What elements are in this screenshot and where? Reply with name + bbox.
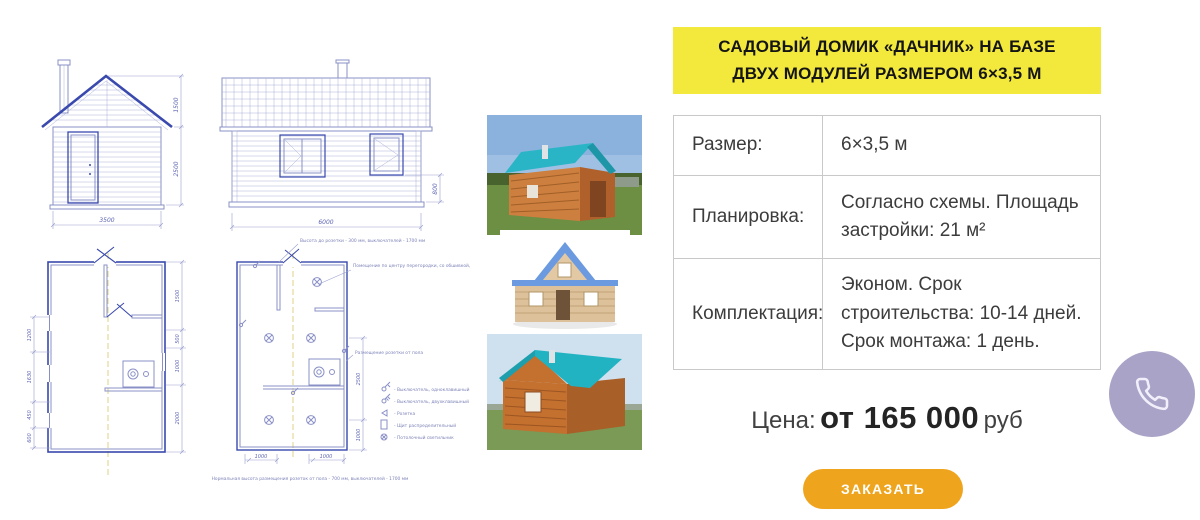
note-top: Высота до розетки - 300 мм, выключателей… [300, 237, 425, 244]
dim-label: 1000 [320, 454, 333, 460]
spec-table: Размер: 6×3,5 м Планировка: Согласно схе… [673, 115, 1101, 370]
dimension-right: 800 [405, 173, 444, 204]
dimension-bottom: 1000 1000 [245, 454, 346, 464]
base-plinth [50, 205, 164, 209]
dimension-left: 1200 1630 450 600 [27, 315, 50, 450]
spec-label-layout: Планировка: [674, 176, 823, 259]
spec-value-size: 6×3,5 м [823, 116, 1101, 176]
dim-label: 1500 [175, 290, 181, 303]
dim-label: 800 [432, 183, 439, 195]
legend-label: - Потолочный светильник [394, 434, 454, 441]
chimney [336, 60, 349, 78]
dim-label: 2500 [173, 161, 180, 176]
partitions [263, 249, 344, 389]
house-photo-2[interactable] [500, 230, 630, 332]
dim-label: 1630 [27, 371, 33, 384]
front-elevation-drawing: 1500 2500 3500 [28, 45, 216, 243]
outer-walls [237, 262, 347, 450]
spec-value-kit: Эконом. Срок строительства: 10-14 дней. … [823, 259, 1101, 370]
door [68, 132, 98, 203]
dimension-bottom: 6000 [230, 213, 423, 231]
dim-label: 6000 [318, 219, 333, 226]
price-currency: руб [984, 407, 1023, 434]
cooker-symbol [309, 359, 340, 385]
gable-wall [53, 80, 161, 205]
dim-label: 2000 [175, 412, 181, 425]
table-row: Планировка: Согласно схемы. Площадь заст… [674, 176, 1101, 259]
phone-button[interactable] [1109, 351, 1195, 437]
spec-label-kit: Комплектация: [674, 259, 823, 370]
dim-label: 450 [27, 410, 33, 420]
floor-plan-drawing: 1200 1630 450 600 1500 500 1000 2000 [20, 245, 200, 485]
house-photo-1[interactable] [487, 115, 642, 235]
product-page: 1500 2500 3500 [0, 0, 1200, 520]
notes: Высота до розетки - 300 мм, выключателей… [212, 237, 470, 482]
dim-label: 1000 [175, 360, 181, 373]
panel-icon [381, 420, 387, 429]
dim-label: 1000 [356, 429, 362, 442]
order-button[interactable]: ЗАКАЗАТЬ [803, 469, 963, 509]
legend: - Выключатель, одноклавишный - Выключате… [381, 382, 470, 441]
spec-label-size: Размер: [674, 116, 823, 176]
house-photo-3[interactable] [487, 334, 642, 450]
price-line: Цена: от 165 000 руб [673, 400, 1101, 436]
dimension-bottom: 3500 [51, 211, 163, 229]
dim-label: 3500 [99, 217, 114, 224]
note-mid: Размещение розетки от пола [355, 350, 423, 356]
cooker-symbol [123, 361, 154, 387]
dim-label: 600 [27, 433, 33, 443]
dimension-right: 1500 500 1000 2000 [166, 260, 186, 454]
dim-label: 1200 [27, 329, 33, 342]
price-label: Цена: [751, 407, 815, 434]
table-row: Размер: 6×3,5 м [674, 116, 1101, 176]
product-title-banner: САДОВЫЙ ДОМИК «ДАЧНИК» НА БАЗЕ ДВУХ МОДУ… [673, 27, 1101, 94]
legend-label: - Выключатель, двухклавишный [394, 398, 469, 405]
electric-plan-drawing: Высота до розетки - 300 мм, выключателей… [205, 233, 470, 503]
plan-caption: Нормальная высота размещения розеток от … [212, 475, 409, 482]
legend-label: - Щит распределительный [394, 422, 456, 429]
dim-label: 1000 [255, 454, 268, 460]
spec-value-layout: Согласно схемы. Площадь застройки: 21 м² [823, 176, 1101, 259]
ceiling-light-icon [381, 434, 387, 440]
window-single [370, 134, 403, 175]
switch-double-icon [382, 394, 390, 403]
legend-label: - Выключатель, одноклавишный [394, 386, 470, 393]
entry-doors [94, 247, 116, 267]
product-title: САДОВЫЙ ДОМИК «ДАЧНИК» НА БАЗЕ ДВУХ МОДУ… [673, 34, 1101, 87]
dim-label: 1500 [173, 97, 180, 112]
dim-label: 2500 [356, 373, 362, 386]
tiled-roof [220, 78, 432, 131]
phone-icon [1134, 376, 1170, 412]
side-elevation-drawing: 800 6000 [210, 45, 460, 243]
legend-label: - Розетка [394, 411, 416, 417]
switch-single-icon [382, 382, 390, 391]
socket-icon [382, 410, 387, 416]
note-right: Помещение по центру перегородки, со обши… [353, 262, 470, 269]
dim-label: 500 [175, 334, 181, 344]
side-wall [229, 131, 424, 207]
table-row: Комплектация: Эконом. Срок строительства… [674, 259, 1101, 370]
price-amount: от 165 000 [820, 400, 979, 435]
house [505, 143, 616, 221]
